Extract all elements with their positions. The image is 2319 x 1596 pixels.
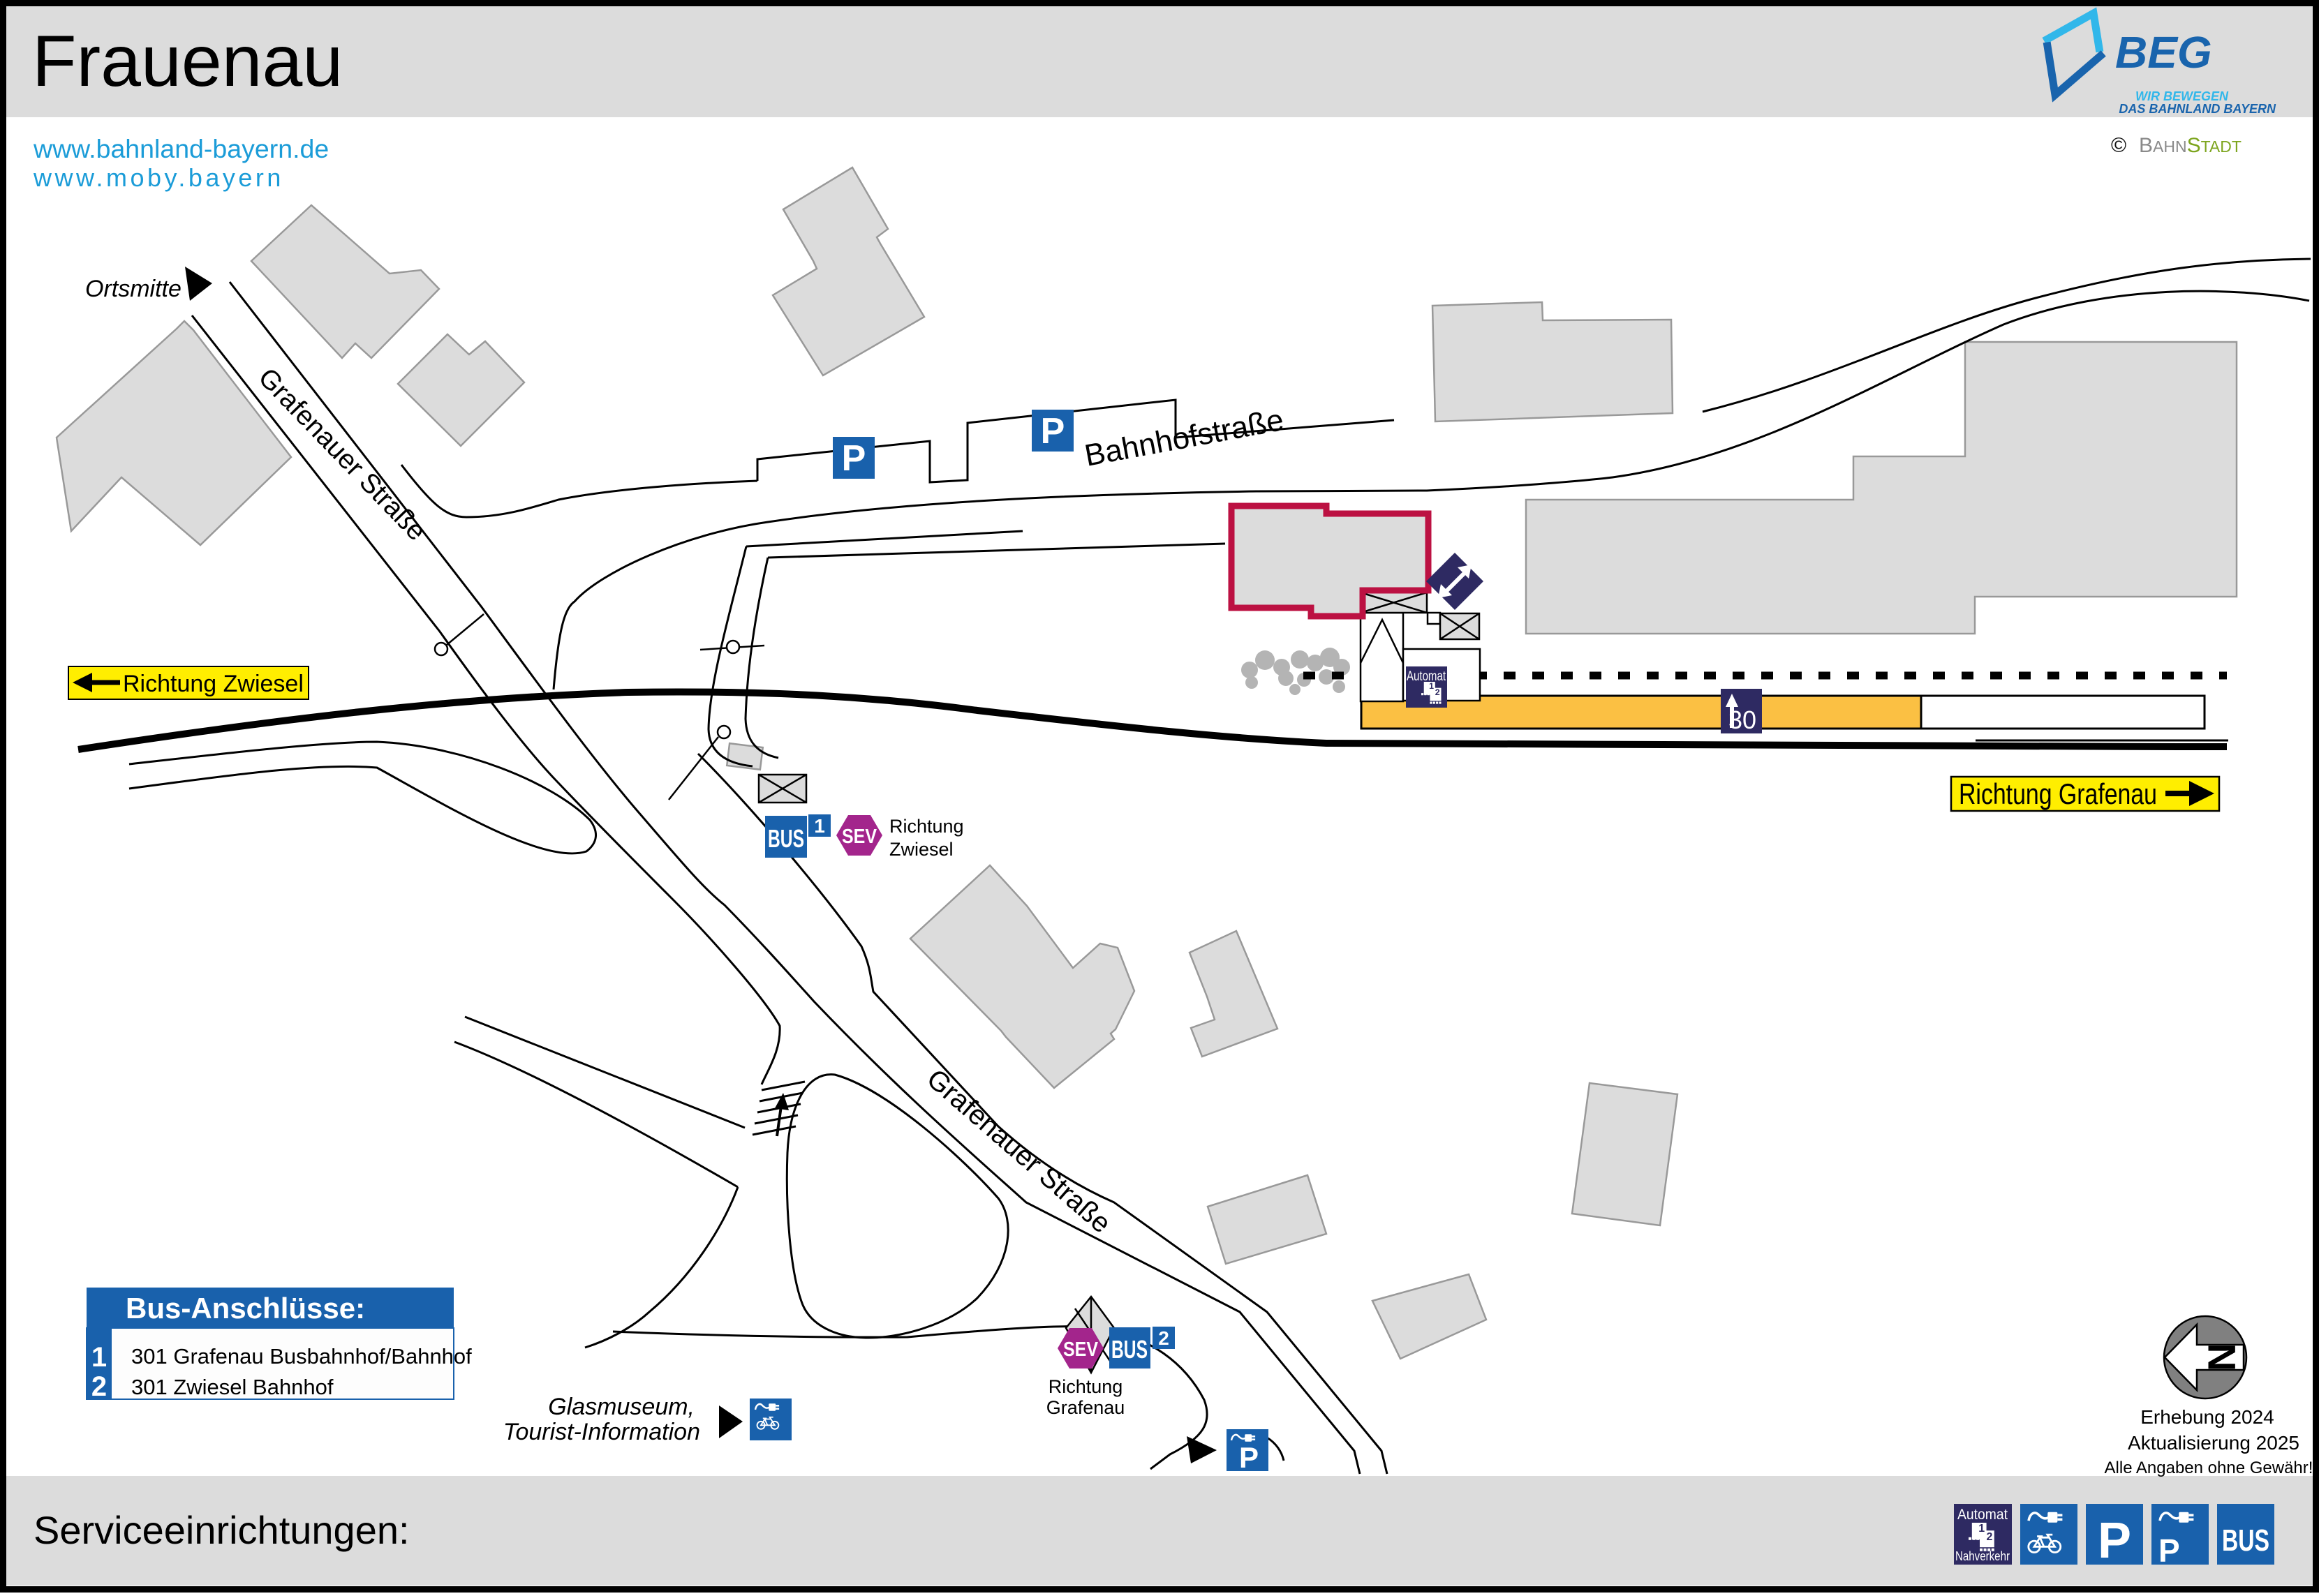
svg-text:Aktualisierung 2025: Aktualisierung 2025 <box>2128 1432 2299 1454</box>
svg-text:Bahnhofstraße: Bahnhofstraße <box>1082 403 1287 473</box>
svg-text:Richtung: Richtung <box>1049 1376 1123 1397</box>
svg-text:BAHNSTADT: BAHNSTADT <box>2139 134 2242 157</box>
svg-text:Automat: Automat <box>1407 669 1446 684</box>
svg-text:Automat: Automat <box>1957 1507 2008 1523</box>
svg-text:P: P <box>1239 1441 1259 1474</box>
svg-text:BUS: BUS <box>2222 1523 2269 1558</box>
svg-text:2: 2 <box>91 1371 107 1402</box>
svg-text:30: 30 <box>1728 706 1756 734</box>
svg-text:Tourist-Information: Tourist-Information <box>503 1419 700 1445</box>
svg-text:DAS BAHNLAND BAYERN: DAS BAHNLAND BAYERN <box>2119 102 2276 116</box>
svg-text:©: © <box>2111 134 2126 157</box>
svg-text:1: 1 <box>91 1342 107 1373</box>
svg-text:SEV: SEV <box>842 826 877 848</box>
svg-text:SEV: SEV <box>1063 1338 1099 1361</box>
svg-text:301 Grafenau Busbahnhof/Bahnho: 301 Grafenau Busbahnhof/Bahnhof <box>131 1344 472 1368</box>
svg-text:Grafenau: Grafenau <box>1046 1397 1125 1418</box>
svg-text:Alle Angaben ohne Gewähr!: Alle Angaben ohne Gewähr! <box>2105 1459 2313 1477</box>
svg-text:P: P <box>1041 411 1065 452</box>
svg-text:N: N <box>2200 1343 2244 1371</box>
svg-text:Glasmuseum,: Glasmuseum, <box>548 1394 695 1420</box>
svg-text:Bus-Anschlüsse:: Bus-Anschlüsse: <box>126 1292 365 1325</box>
svg-text:301 Zwiesel Bahnhof: 301 Zwiesel Bahnhof <box>131 1375 334 1399</box>
svg-text:BEG: BEG <box>2115 27 2212 77</box>
svg-text:www.moby.bayern: www.moby.bayern <box>33 163 284 192</box>
svg-text:Serviceeinrichtungen:: Serviceeinrichtungen: <box>34 1508 410 1552</box>
svg-text:BUS: BUS <box>1111 1335 1148 1364</box>
svg-text:Ortsmitte: Ortsmitte <box>85 276 181 302</box>
svg-text:Richtung Grafenau: Richtung Grafenau <box>1959 777 2157 810</box>
svg-text:2: 2 <box>1158 1327 1169 1349</box>
svg-text:Erhebung 2024: Erhebung 2024 <box>2140 1406 2274 1428</box>
svg-text:Richtung: Richtung <box>889 816 964 837</box>
svg-text:Nahverkehr: Nahverkehr <box>1955 1549 2010 1563</box>
svg-text:Zwiesel: Zwiesel <box>889 839 954 860</box>
svg-text:P: P <box>842 438 866 479</box>
svg-text:BUS: BUS <box>768 824 804 853</box>
svg-text:Frauenau: Frauenau <box>32 21 343 102</box>
svg-text:P: P <box>2098 1513 2131 1569</box>
svg-text:WIR BEWEGEN: WIR BEWEGEN <box>2135 89 2229 103</box>
svg-text:1: 1 <box>814 815 825 837</box>
svg-text:P: P <box>2158 1532 2180 1569</box>
svg-text:www.bahnland-bayern.de: www.bahnland-bayern.de <box>33 134 329 163</box>
svg-text:Richtung Zwiesel: Richtung Zwiesel <box>123 671 304 697</box>
